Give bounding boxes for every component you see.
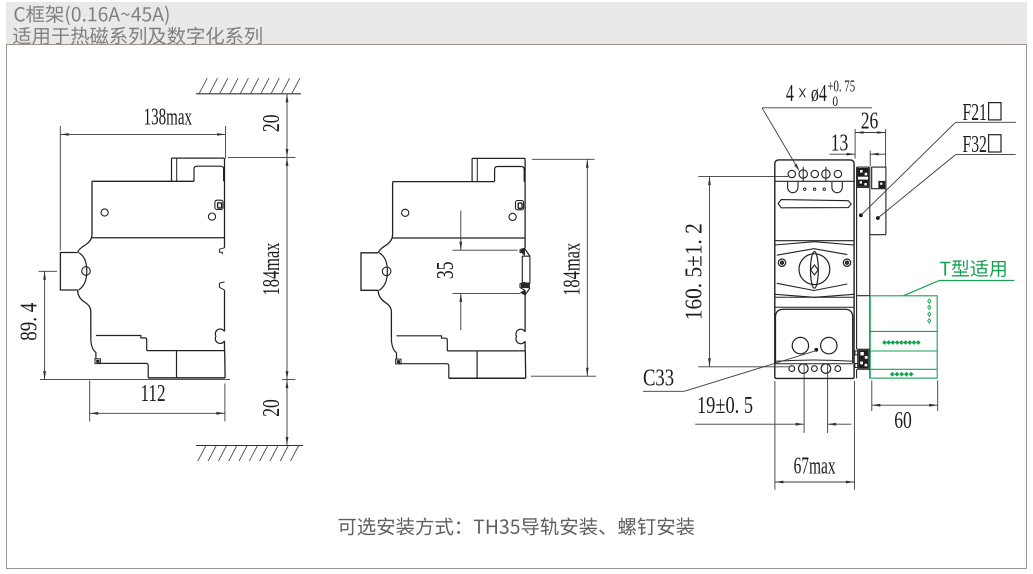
svg-text:F21: F21 [963,100,987,126]
svg-text:67max: 67max [794,454,836,480]
svg-text:184max: 184max [560,243,586,296]
svg-text:160. 5±1. 2: 160. 5±1. 2 [682,223,708,320]
svg-text:184max: 184max [259,243,285,296]
svg-text:20: 20 [259,114,285,132]
svg-text:112: 112 [141,381,166,407]
svg-text:60: 60 [894,408,912,434]
svg-text:26: 26 [861,108,879,134]
svg-text:138max: 138max [144,104,192,130]
svg-text:4 × ø4: 4 × ø4 [786,81,827,107]
svg-text:13: 13 [831,130,849,156]
svg-text:35: 35 [433,261,459,279]
svg-text:C33: C33 [643,366,674,392]
svg-text:19±0. 5: 19±0. 5 [697,393,753,419]
svg-text:89. 4: 89. 4 [17,303,43,341]
svg-text:+0. 75: +0. 75 [827,77,855,96]
svg-text:20: 20 [259,399,285,417]
svg-text:F32: F32 [963,132,987,158]
